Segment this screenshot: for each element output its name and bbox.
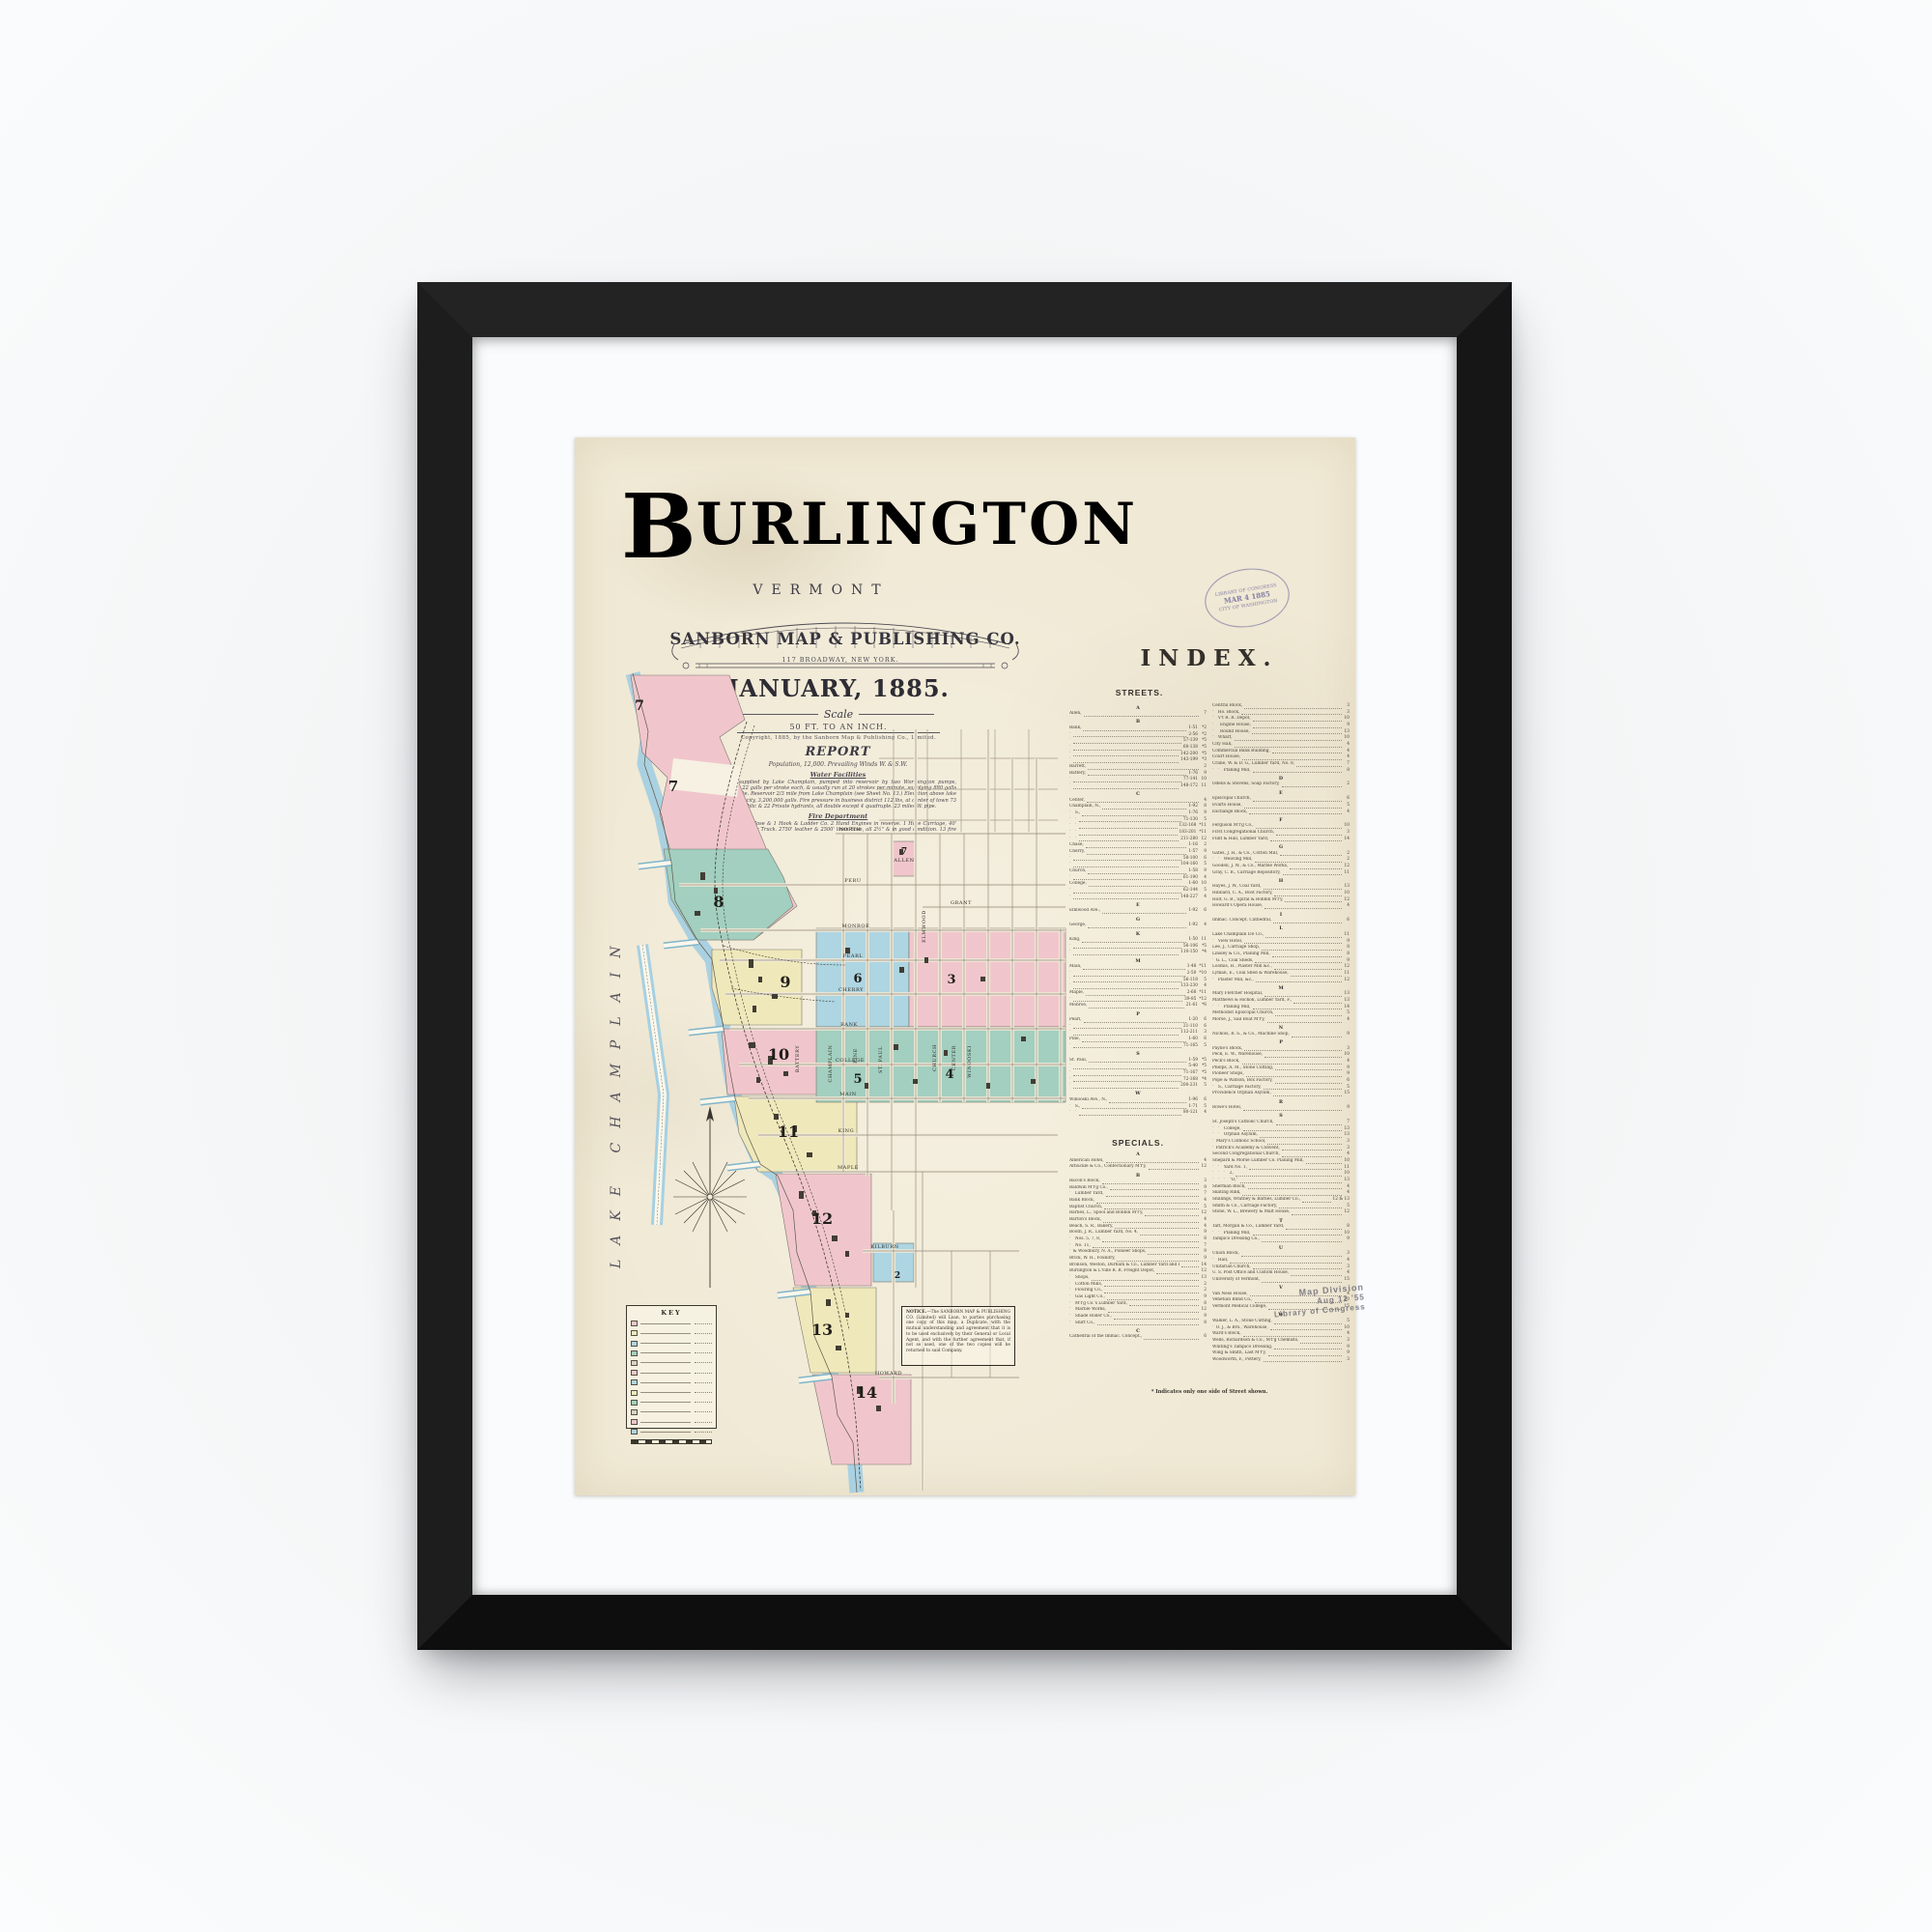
page-title: BURLINGTON <box>621 482 1075 571</box>
key-legend-row <box>631 1370 712 1376</box>
ornate-initial: B <box>621 474 696 579</box>
index-row: ″ Shops,13 <box>1069 1275 1207 1282</box>
index-row: ″ Wharf,10 <box>1212 735 1350 742</box>
index-row: Church,1-589 <box>1069 868 1207 875</box>
index-row: Rowe's Hotel,9 <box>1212 1105 1350 1112</box>
index-row: ″ Mary's Catholic School,3 <box>1212 1139 1350 1146</box>
index-row: Loomis, H., Plaster Mill &c.,12 <box>1212 964 1350 971</box>
product-photo-background: BURLINGTON VERMONT <box>0 0 1932 1932</box>
index-row: ″58-1006 <box>1069 856 1207 863</box>
index-row: ″ Flouring Co.,2 <box>1069 1288 1207 1294</box>
index-row: Howard's Opera House,4 <box>1212 903 1350 910</box>
index-row: ″133-2304 <box>1069 983 1207 990</box>
notice-box: NOTICE.—The SANBORN MAP & PUBLISHING CO.… <box>901 1306 1015 1366</box>
index-heading: INDEX. <box>1069 645 1350 671</box>
index-row: Payne's Block,3 <box>1212 1046 1350 1053</box>
index-row: Hibbard, C. A., Boot Factory,10 <box>1212 891 1350 897</box>
key-title: KEY <box>631 1309 712 1317</box>
index-section-letter: K <box>1069 931 1207 937</box>
sheet-number: 8 <box>713 893 724 911</box>
map-key-box: KEY <box>626 1305 717 1429</box>
index-row: ″77-14110 <box>1069 777 1207 783</box>
sheet-number: 7 <box>635 698 644 714</box>
index-row: Barton's Block,4 <box>1069 1217 1207 1224</box>
street-label: GRANT <box>951 900 972 906</box>
street-label: PINE <box>853 1048 859 1064</box>
index-row: Ferguson M'f'g Co.,10 <box>1212 823 1350 830</box>
key-legend-row <box>631 1400 712 1406</box>
index-row: Court House,4 <box>1212 754 1350 761</box>
index-row: ″60-138*5 <box>1069 745 1207 752</box>
index-section-letter: P <box>1212 1039 1350 1045</box>
index-row: Main,1-48*11 <box>1069 964 1207 971</box>
index-row: Champlain, N.,1-928 <box>1069 804 1207 810</box>
index-row: ″ ″80-1214 <box>1069 1110 1207 1117</box>
index-row: ″ Lumber Yard,7 <box>1069 1191 1207 1198</box>
street-label: MAIN <box>839 1092 857 1097</box>
index-row: Cherry,1-579 <box>1069 849 1207 856</box>
specials-heading: SPECIALS. <box>1069 1138 1207 1148</box>
index-column-right: Central Block,3″ Ho. Block,3″ V't R. R. … <box>1212 703 1350 1363</box>
index-row: Pearl,1-206 <box>1069 1017 1207 1024</box>
index-row: U. S. Post Office and Custom House,4 <box>1212 1270 1350 1277</box>
index-row: Brick, W. H., Foundry,9 <box>1069 1256 1207 1263</box>
key-legend-row <box>631 1390 712 1396</box>
index-row: Peck, E. W., Warehouse,10 <box>1212 1052 1350 1059</box>
index-row: Wing & Smith, Last M'f'y,9 <box>1212 1350 1350 1357</box>
sheet-number: 9 <box>780 973 790 991</box>
publisher-address: 117 BROADWAY, NEW YORK. <box>700 656 980 664</box>
index-row: King,1-5011 <box>1069 937 1207 944</box>
index-row: ″2-50*10 <box>1069 971 1207 978</box>
index-section-letter: R <box>1212 1099 1350 1105</box>
index-row: Walker, L. A., Stone Cutting,5 <box>1212 1319 1350 1325</box>
index-row: Elmwood Ave.,1-926 <box>1069 908 1207 915</box>
index-row: George,1-924 <box>1069 923 1207 929</box>
index-row: Monroe,21-61*6 <box>1069 1003 1207 1009</box>
index-row: Bacon's Block,3 <box>1069 1179 1207 1185</box>
mat-board: BURLINGTON VERMONT <box>472 337 1457 1595</box>
index-row: ″ ″ College,13 <box>1212 1126 1350 1133</box>
index-row: Second Congregational Church,4 <box>1212 1151 1350 1158</box>
notice-lead: NOTICE. <box>906 1310 926 1315</box>
index-row: Pine,1-606 <box>1069 1037 1207 1043</box>
sheet-number: 12 <box>811 1209 833 1228</box>
index-row: Peck's Block,4 <box>1212 1059 1350 1065</box>
index-row: Pioneer Shops,9 <box>1212 1071 1350 1078</box>
index-row: Baptist Church,5 <box>1069 1205 1207 1211</box>
index-row: Cathedral of the Immac. Concept.,6 <box>1069 1334 1207 1341</box>
index-row: Burlington & L'ville R. R. Freight Depot… <box>1069 1268 1207 1275</box>
index-row: ″ S.,1-715 <box>1069 1104 1207 1111</box>
sheet-number: 10 <box>768 1045 789 1064</box>
index-row: ″ ″132-168*11 <box>1069 823 1207 830</box>
index-row: ″104-1605 <box>1069 862 1207 868</box>
index-row: Whiting's Tampico Dressing,9 <box>1212 1345 1350 1351</box>
index-row: ″ No. 11,7 <box>1069 1243 1207 1250</box>
index-row: ″ Hall,4 <box>1212 1258 1350 1264</box>
index-row: ″143-199*3 <box>1069 757 1207 764</box>
index-row: Bronson, Weston, Durham & Co., Lumber Ya… <box>1069 1263 1207 1269</box>
index-section-letter: G <box>1212 844 1350 850</box>
sheet-number: 2 <box>895 1271 900 1281</box>
index-row: Nichols, R. S., & Co., Machine Shop,9 <box>1212 1032 1350 1038</box>
street-label: HOWARD <box>875 1371 902 1377</box>
street-label: BATTERY <box>795 1045 801 1073</box>
index-row: ″56-1185 <box>1069 978 1207 984</box>
index-row: ″ ″ Weaving Mill,2 <box>1212 857 1350 864</box>
index-row: ″148-2274 <box>1069 895 1207 901</box>
index-row: University of Vermont,15 <box>1212 1277 1350 1284</box>
index-row: Odells & Stevens, Soap Factory,2 <box>1212 781 1350 788</box>
index-row: Pope & Watson, Box Factory,6 <box>1212 1078 1350 1085</box>
index-row: Linsley & Co., Planing Mill,8 <box>1212 952 1350 958</box>
sheet-number: 7 <box>668 778 678 795</box>
street-label: MAPLE <box>838 1165 859 1171</box>
sheet-number: 7 <box>901 847 907 857</box>
index-section-letter: W <box>1069 1091 1207 1096</box>
index-row: ″71-167*5 <box>1069 1070 1207 1077</box>
index-row: Booth, J. R., Lumber Yard, No. 4,9 <box>1069 1230 1207 1236</box>
street-label: MONROE <box>842 923 870 929</box>
index-row: Gray, C. B., Carriage Repository,11 <box>1212 870 1350 877</box>
key-legend-rows <box>631 1321 712 1435</box>
street-label: ELMWOOD <box>922 910 927 943</box>
key-legend-row <box>631 1321 712 1326</box>
index-row: Winooski Ave., N.,1-966 <box>1069 1097 1207 1104</box>
index-row: Lee, J., Carriage Shop,8 <box>1212 945 1350 952</box>
key-legend-row <box>631 1330 712 1336</box>
index-row: Shepard & Morse Lumber Co. Planing Mill,… <box>1212 1158 1350 1165</box>
index-row: Allen,7 <box>1069 711 1207 718</box>
index-section-letter: S <box>1212 1113 1350 1119</box>
index-row: Chase,1-162 <box>1069 842 1207 849</box>
index-row: Stone, W. L., Brewery & Malt House,12 <box>1212 1209 1350 1216</box>
index-row: ″5-40*5 <box>1069 1064 1207 1070</box>
index-row: Barnes, L., Spool and Bobbin M'f'y,12 <box>1069 1210 1207 1217</box>
index-row: ″ S.,1-769 <box>1069 810 1207 817</box>
index-section-letter: I <box>1212 912 1350 918</box>
index-section-letter: E <box>1069 902 1207 908</box>
index-section-letter: C <box>1069 791 1207 797</box>
index-row: ″ Nos. 5, 7, 8,8 <box>1069 1236 1207 1243</box>
index-row: Bank,1-51*2 <box>1069 725 1207 732</box>
sheet-number: 14 <box>856 1383 877 1402</box>
index-row: Crane, W. & D. G., Lumber Yard, No. 8,7 <box>1212 761 1350 768</box>
index-row: ″62-1445 <box>1069 888 1207 895</box>
index-row: ″ ″71-1305 <box>1069 817 1207 824</box>
sheet-number: 6 <box>853 972 862 986</box>
index-section-letter: S <box>1069 1051 1207 1057</box>
index-row: Central Block,3 <box>1212 703 1350 710</box>
index-row: Morse, J., Sail Boat M'f'y,4 <box>1212 1017 1350 1024</box>
index-row: Goodell, J. W., & Co., Marble Works,12 <box>1212 864 1350 870</box>
index-row: ″110-150*4 <box>1069 950 1207 956</box>
index-row: Gates, J. H., & Co., Cotton Mill,2 <box>1212 851 1350 858</box>
street-label: CHERRY <box>838 987 864 993</box>
index-row: ″ G. L., Coal Sheds,9 <box>1212 958 1350 965</box>
district-12 <box>776 1174 871 1286</box>
index-row: Barrett,2 <box>1069 764 1207 771</box>
key-legend-row <box>631 1419 712 1425</box>
index-row: ″2-56*2 <box>1069 732 1207 739</box>
index-row: Phelps, A. M., Stone Cutting,9 <box>1212 1065 1350 1072</box>
index-row: ″ ″211-28012 <box>1069 837 1207 843</box>
index-row: Center,4 <box>1069 798 1207 805</box>
street-label: NORTH <box>839 827 862 833</box>
index-row: ″57-139*5 <box>1069 738 1207 745</box>
index-row: Matthews & Hickok, Lumber Yard, F.,13 <box>1212 998 1350 1005</box>
index-row: Flint & Hall, Lumber Yard,14 <box>1212 837 1350 843</box>
index-section: INDEX. STREETS. AAllen,7BBank,1-51*2″2-5… <box>1069 645 1350 671</box>
index-row: ″ Plaster Mill, &c.,12 <box>1212 978 1350 984</box>
index-row: ″ Marble Works,12 <box>1069 1307 1207 1314</box>
index-column-left: AAllen,7BBank,1-51*2″2-56*2″57-139*5″60-… <box>1069 703 1207 1363</box>
index-section-letter: G <box>1069 917 1207 923</box>
index-section-letter: C <box>1069 1328 1207 1334</box>
index-section-letter: A <box>1069 705 1207 711</box>
street-label: WINOOSKI <box>967 1045 973 1078</box>
index-row: ″ ″ Orphan Asylum,13 <box>1212 1132 1350 1139</box>
index-section-letter: P <box>1069 1011 1207 1017</box>
index-row: Sherman Block,4 <box>1212 1184 1350 1191</box>
street-label: CHURCH <box>932 1044 938 1071</box>
index-row: ″ Shirt Co.,8 <box>1069 1321 1207 1327</box>
index-row: Immac. Concept. Cathedral,6 <box>1212 918 1350 924</box>
index-row: ″ View Hotel,9 <box>1212 939 1350 946</box>
index-row: College,1-6010 <box>1069 881 1207 888</box>
district-6 <box>816 928 909 1027</box>
index-row: St. Paul,1-59*5 <box>1069 1058 1207 1065</box>
index-row: ″ Patrick's Academy & Convent,3 <box>1212 1146 1350 1152</box>
notice-text: —The SANBORN MAP & PUBLISHING CO. (Limit… <box>906 1310 1010 1353</box>
index-row: Lyman, E., Coal Shed & Warehouse,11 <box>1212 971 1350 978</box>
index-row: Shillings, Whitney & Barnes, Lumber Co.,… <box>1212 1197 1350 1204</box>
index-row: Woodworth, F., Pottery,3 <box>1212 1357 1350 1364</box>
index-row: Wells, Richardson & Co., M'f'g Chemists,… <box>1212 1338 1350 1345</box>
street-label: COLLEGE <box>836 1058 865 1064</box>
street-label: KILBURN <box>870 1244 898 1250</box>
index-section-letter: M <box>1212 985 1350 991</box>
index-section-letter: H <box>1212 878 1350 884</box>
compass-rose-icon <box>673 1106 747 1288</box>
index-row: Maple,2-68*11 <box>1069 990 1207 997</box>
index-row: ″ Cotton Mills,2 <box>1069 1282 1207 1289</box>
index-row: ″ ″ Planing Mill,10 <box>1212 1231 1350 1237</box>
index-row: ″142-200*5 <box>1069 752 1207 758</box>
sheet-number: 3 <box>947 973 955 987</box>
index-row: ″ O. J., & Bro., Warehouse,10 <box>1212 1325 1350 1332</box>
street-label: BANK <box>840 1022 858 1028</box>
key-legend-row <box>631 1360 712 1366</box>
sheet-number: 13 <box>811 1321 833 1339</box>
index-row: ″ ″ Planing Mill,8 <box>1212 768 1350 775</box>
index-section-letter: D <box>1212 776 1350 781</box>
index-row: ″ & Woodbury, N. A., Pioneer Shops,9 <box>1069 1249 1207 1256</box>
key-legend-row <box>631 1350 712 1356</box>
index-row: Smith & Co., Carriage Factory,5 <box>1212 1204 1350 1210</box>
index-row: ″ Shade Roller Co.,9 <box>1069 1314 1207 1321</box>
index-row: ″ ″ Planing Mill,14 <box>1212 1005 1350 1011</box>
index-row: Mary Fletcher Hospital,13 <box>1212 991 1350 998</box>
index-section-letter: A <box>1069 1151 1207 1157</box>
key-legend-row <box>631 1341 712 1347</box>
index-row: ″ Gas Light Co.,9 <box>1069 1294 1207 1301</box>
index-section-letter: B <box>1069 1173 1207 1179</box>
index-row: Union Block,3 <box>1212 1251 1350 1258</box>
index-row: First Congregational Church,3 <box>1212 830 1350 837</box>
key-legend-row <box>631 1429 712 1435</box>
index-section-letter: L <box>1212 925 1350 931</box>
index-row: ″112-2113 <box>1069 1030 1207 1037</box>
index-footnote: * Indicates only one side of Street show… <box>1069 1389 1350 1395</box>
street-label: PEARL <box>843 953 864 959</box>
index-row: ″ Engine House,9 <box>1212 723 1350 729</box>
sheet-number: 4 <box>945 1067 953 1082</box>
index-row: ″ ″ ″ “D,”13 <box>1212 1178 1350 1184</box>
key-legend-row <box>631 1409 712 1415</box>
index-row: ″ S., Carriage Factory,5 <box>1212 1085 1350 1092</box>
index-section-letter: F <box>1212 817 1350 823</box>
key-legend-row <box>631 1379 712 1385</box>
index-row: Skating Rink,4 <box>1212 1190 1350 1197</box>
index-row: Unitarian Church,3 <box>1212 1264 1350 1271</box>
key-scale-bar <box>631 1439 712 1444</box>
street-label: KING <box>838 1128 854 1134</box>
index-row: Lake Champlain Ice Co.,11 <box>1212 932 1350 939</box>
index-row: Providence Orphan Asylum,15 <box>1212 1091 1350 1097</box>
street-label: PERU <box>844 878 861 884</box>
street-label: ALLEN <box>893 858 914 864</box>
index-row: ″71-1655 <box>1069 1043 1207 1050</box>
index-row: Methodist Episcopal Church,5 <box>1212 1010 1350 1017</box>
index-section-letter: T <box>1212 1218 1350 1224</box>
index-row: Evarts House,5 <box>1212 803 1350 810</box>
sheet-number: 5 <box>853 1072 862 1087</box>
subtitle-vermont: VERMONT <box>681 582 961 598</box>
index-row: ″ Ho. Block,3 <box>1212 710 1350 717</box>
index-row: Exchange Block,4 <box>1212 810 1350 816</box>
index-row: ″39-85*12 <box>1069 997 1207 1004</box>
library-of-congress-stamp: LIBRARY OF CONGRESS MAR 4 1885 CITY OF W… <box>1201 562 1293 633</box>
index-section-letter: U <box>1212 1245 1350 1251</box>
index-section-letter: B <box>1069 719 1207 724</box>
index-row: ″ M'f'g Co.'s Lumber Yard,8 <box>1069 1301 1207 1308</box>
index-row: ″21-1106 <box>1069 1024 1207 1031</box>
index-row: Episcopal Church,6 <box>1212 796 1350 803</box>
index-row: ″56-106*5 <box>1069 944 1207 951</box>
index-row: ″200-2315 <box>1069 1083 1207 1090</box>
index-row: American Hotel,4 <box>1069 1158 1207 1165</box>
street-label: ST. PAUL <box>878 1046 884 1073</box>
map-sheet: BURLINGTON VERMONT <box>575 438 1355 1495</box>
streets-heading: STREETS. <box>1069 688 1209 697</box>
index-row: St. Joseph's Catholic Church,7 <box>1212 1120 1350 1126</box>
index-row: ″ V't R. R. Depot,10 <box>1212 716 1350 723</box>
index-row: Baldwin M'f'g Co.,9 <box>1069 1185 1207 1192</box>
index-row: Holt, G. B., Spiral & Bobbin M'f'y,12 <box>1212 897 1350 904</box>
index-row: ″ ″183-201*11 <box>1069 830 1207 837</box>
index-row: ″72-168*4 <box>1069 1077 1207 1084</box>
publisher-line: SANBORN MAP & PUBLISHING CO. <box>667 630 1024 648</box>
index-row: Ward's Block,4 <box>1212 1331 1350 1338</box>
district-13 <box>793 1288 876 1373</box>
street-grid-upper <box>879 729 1058 834</box>
index-row: ″ ″ ″ 2,10 <box>1212 1171 1350 1178</box>
lake-label: LAKE CHAMPLAIN <box>609 931 624 1269</box>
index-row: Arbuckle & Co., Confectionary M'f'y,12 <box>1069 1164 1207 1171</box>
index-section-letter: M <box>1069 958 1207 964</box>
index-row: ″148-17211 <box>1069 783 1207 790</box>
index-row: ″ ″ Yard No. 1,11 <box>1212 1165 1350 1172</box>
index-row: City Hall,4 <box>1212 742 1350 749</box>
index-section-letter: E <box>1212 790 1350 796</box>
index-row: Beach, S. R., Bakery,4 <box>1069 1224 1207 1231</box>
index-row: Tampico Dressing Co.,9 <box>1212 1236 1350 1243</box>
index-row: Taft, Morgan & Co., Lumber Yard,8 <box>1212 1224 1350 1231</box>
index-row: Bank Block,4 <box>1069 1198 1207 1205</box>
index-row: ″ Round House,13 <box>1212 729 1350 736</box>
index-row: ″61-1904 <box>1069 875 1207 882</box>
street-label: CHAMPLAIN <box>828 1044 834 1082</box>
index-row: Hayes, J. W., Coal Yard,13 <box>1212 884 1350 891</box>
index-row: Commercial Bank Building,4 <box>1212 749 1350 755</box>
index-section-letter: N <box>1212 1025 1350 1031</box>
picture-frame: BURLINGTON VERMONT <box>417 282 1512 1650</box>
index-row: Battery,1-769 <box>1069 771 1207 778</box>
sheet-number: 11 <box>778 1122 799 1141</box>
